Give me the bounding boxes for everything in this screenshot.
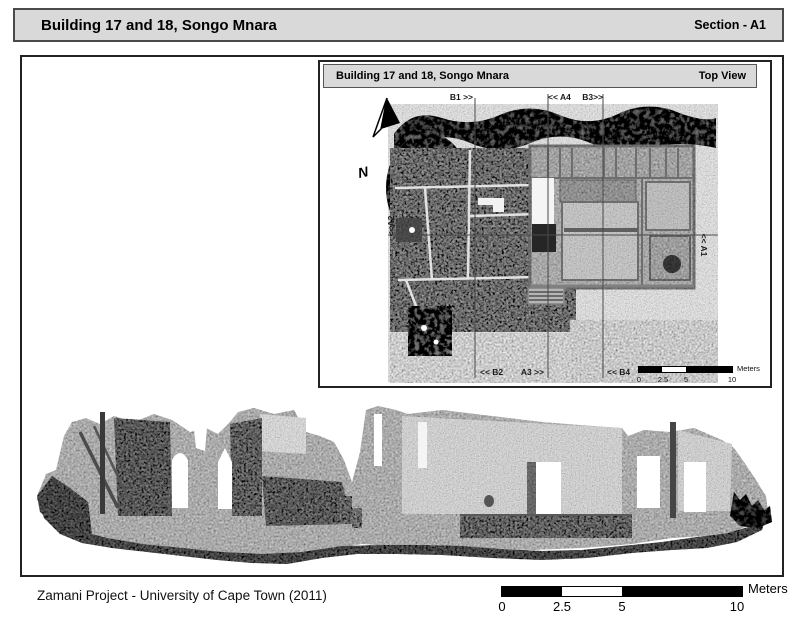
- sheet: Building 17 and 18, Songo Mnara Section …: [0, 0, 800, 618]
- marker-a2: <<A2: [386, 206, 396, 246]
- inset-tick-0: 0: [637, 375, 641, 384]
- main-tick-25: 2.5: [553, 599, 571, 614]
- inset-tick-10: 10: [728, 375, 736, 384]
- window-slot-2: [418, 422, 427, 468]
- marker-b1: B1 >>: [435, 92, 473, 102]
- plan-rubble-square: [408, 306, 452, 356]
- scale-segment: [622, 587, 742, 596]
- top-notch: [194, 427, 207, 451]
- marker-a1: << A1: [699, 225, 709, 265]
- door-opening-1: [172, 453, 188, 508]
- plaster-patch: [260, 414, 306, 454]
- page-title: Building 17 and 18, Songo Mnara: [41, 17, 277, 34]
- scale-segment: [502, 587, 562, 596]
- door-opening-5: [684, 462, 706, 512]
- marker-b3: B3>>: [565, 92, 603, 102]
- rubble-base-center: [262, 476, 352, 526]
- top-view-inset: Building 17 and 18, Songo Mnara Top View: [318, 60, 772, 388]
- main-tick-10: 10: [730, 599, 744, 614]
- post-mid: [670, 422, 676, 518]
- credit-line: Zamani Project - University of Cape Town…: [37, 588, 327, 603]
- inset-view-label: Top View: [699, 70, 746, 82]
- inset-tick-5: 5: [684, 375, 688, 384]
- scale-segment: [562, 587, 622, 596]
- door-opening-4: [637, 456, 660, 508]
- plan-stairs: [528, 288, 564, 304]
- main-tick-5: 5: [618, 599, 625, 614]
- inset-tick-25: 2.5: [658, 375, 668, 384]
- section-elevation-image: [22, 396, 782, 574]
- inset-header-bar: Building 17 and 18, Songo Mnara Top View: [323, 64, 757, 88]
- scale-segment: [662, 367, 685, 372]
- stone-wall-dark: [114, 418, 172, 516]
- stone-wall-mid: [230, 418, 262, 516]
- door-jamb-3: [527, 462, 536, 516]
- plaster-wall-light: [402, 416, 622, 514]
- inset-title: Building 17 and 18, Songo Mnara: [336, 70, 509, 82]
- marker-a3: A3 >>: [506, 367, 544, 377]
- scale-segment: [686, 367, 733, 372]
- marker-b4: << B4: [607, 367, 630, 377]
- main-scale-bar: [501, 586, 743, 597]
- window-slot-1: [374, 414, 382, 466]
- rubble-block-b: [352, 508, 362, 528]
- wall-hole: [484, 495, 494, 507]
- rubble-dot-1: [421, 325, 427, 331]
- marker-b2: << B2: [480, 367, 503, 377]
- main-tick-0: 0: [498, 599, 505, 614]
- plan-building: [528, 146, 694, 304]
- rubble-dot-2: [434, 340, 439, 345]
- scale-segment: [639, 367, 662, 372]
- rubble-block-a: [340, 496, 352, 524]
- title-bar: Building 17 and 18, Songo Mnara Section …: [13, 8, 784, 42]
- post-left: [100, 412, 105, 514]
- section-label: Section - A1: [694, 18, 766, 32]
- inset-scale-unit: Meters: [737, 364, 760, 373]
- base-platform: [460, 514, 632, 538]
- courtyard-white-dot: [409, 227, 415, 233]
- main-scale-unit: Meters: [748, 581, 788, 596]
- inset-scale-bar: [638, 366, 733, 373]
